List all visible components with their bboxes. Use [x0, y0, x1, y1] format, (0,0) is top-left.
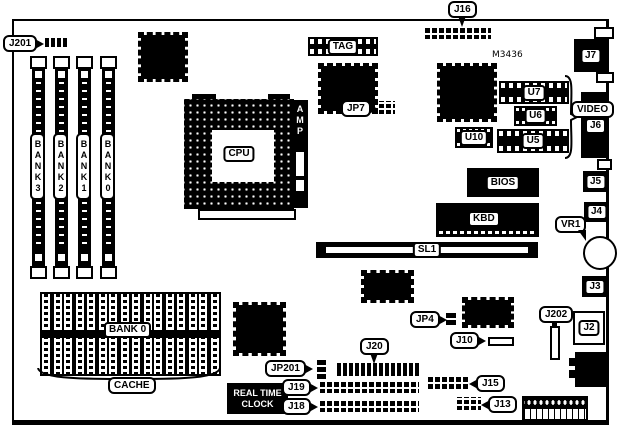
j16-header: [425, 28, 491, 39]
callout-j13: J13: [488, 396, 517, 413]
amp-pad: [296, 180, 304, 191]
simm-latch: [100, 266, 117, 279]
edge-lug: [594, 27, 614, 39]
j15-header: [428, 377, 468, 389]
simm-slot-bank0: BANK0: [102, 57, 115, 278]
bios-label: BIOS: [486, 175, 520, 191]
sl1-slot: SL1: [316, 242, 538, 258]
j201-connector: [45, 38, 67, 47]
simm-key: [57, 253, 66, 262]
simm-label-bank2: BANK2: [53, 133, 68, 200]
j202-connector: [550, 326, 560, 360]
edge-lug: [597, 159, 612, 170]
simm-label-bank0: BANK0: [100, 133, 115, 200]
connector-tab: [569, 358, 575, 366]
rtc-chip: REAL TIME CLOCK: [227, 383, 288, 414]
j20-header: [337, 363, 419, 376]
callout-jp7: JP7: [341, 100, 371, 117]
simm-latch: [30, 56, 47, 69]
callout-j15: J15: [476, 375, 505, 392]
j7-connector: J7: [574, 39, 607, 72]
simm-label-bank3: BANK3: [30, 133, 45, 200]
callout-j20: J20: [360, 338, 389, 355]
j10-connector: [488, 337, 514, 346]
qfp-chip-6: [462, 297, 514, 328]
simm-key: [104, 70, 113, 79]
u7-chip: U7: [499, 81, 569, 104]
vr1-speaker-circle: [583, 236, 617, 270]
j13-connector-strip: [522, 396, 588, 421]
j13-small-header: [457, 397, 481, 410]
rtc-label-line1: REAL TIME: [227, 388, 288, 399]
j3-connector: J3: [582, 276, 608, 297]
simm-key: [80, 70, 89, 79]
callout-jp4: JP4: [410, 311, 440, 328]
cache-socket: [62, 292, 86, 376]
j4-label: J4: [586, 204, 607, 220]
qfp-chip-5: [361, 270, 414, 303]
simm-latch: [100, 56, 117, 69]
amp-regulator-bar: AMP: [292, 100, 308, 208]
callout-j18: J18: [282, 398, 311, 415]
kbd-controller-chip: KBD: [436, 203, 539, 237]
tag-label: TAG: [328, 39, 358, 55]
tag-ram-chip: TAG: [308, 37, 378, 56]
j5-connector: J5: [583, 171, 608, 192]
u5-chip: U5: [497, 129, 569, 153]
amp-label: AMP: [295, 104, 305, 137]
qfp-chip-1: [138, 32, 188, 82]
u6-chip: U6: [514, 106, 557, 126]
simm-latch: [53, 56, 70, 69]
simm-key: [57, 70, 66, 79]
qfp-chip-3: [437, 63, 497, 122]
kbd-pin-row: [439, 231, 536, 234]
bios-chip: BIOS: [467, 168, 539, 197]
j19-header: [320, 382, 419, 393]
motherboard-diagram: J201 BANK3 BANK2 BANK1 BANK0: [0, 0, 619, 434]
simm-label-bank1: BANK1: [76, 133, 91, 200]
sl1-label: SL1: [413, 242, 441, 258]
cache-socket: [40, 292, 64, 376]
u7-label: U7: [523, 85, 546, 101]
jp4-jumper: [446, 312, 456, 327]
cache-socket: [152, 292, 176, 376]
cache-socket: [197, 292, 221, 376]
connector-tab: [569, 370, 575, 378]
jp7-jumper-block: [379, 101, 395, 114]
j2-area: J2: [573, 311, 605, 345]
amp-pad: [296, 152, 304, 176]
callout-vr1: VR1: [555, 216, 586, 233]
cpu-lever-bar: [198, 209, 296, 220]
cpu-socket: CPU: [184, 99, 294, 209]
callout-j19: J19: [282, 379, 311, 396]
u10-label: U10: [460, 130, 488, 146]
simm-latch: [30, 266, 47, 279]
cache-socket: [175, 292, 199, 376]
cpu-label: CPU: [223, 146, 254, 162]
j3-label: J3: [584, 279, 605, 295]
cache-label: CACHE: [108, 377, 156, 394]
callout-j202: J202: [539, 306, 573, 323]
edge-lug: [596, 72, 614, 83]
j6-label: J6: [585, 118, 606, 134]
callout-j16: J16: [448, 1, 477, 18]
u6-label: U6: [524, 108, 547, 124]
connector-block-bottom-right: [575, 352, 607, 387]
callout-jp201: JP201: [265, 360, 306, 377]
simm-key: [34, 70, 43, 79]
rtc-label-line2: CLOCK: [227, 399, 288, 410]
j13-pin-dots: [524, 398, 586, 407]
j4-connector: J4: [584, 202, 609, 222]
simm-slot-bank1: BANK1: [78, 57, 91, 278]
simm-latch: [76, 56, 93, 69]
simm-latch: [76, 266, 93, 279]
simm-key: [34, 253, 43, 262]
part-number-text: M3436: [492, 50, 523, 60]
simm-latch: [53, 266, 70, 279]
simm-slot-bank2: BANK2: [55, 57, 68, 278]
j5-label: J5: [585, 174, 606, 190]
j13-pin-squares: [524, 407, 586, 419]
qfp-chip-4: [233, 302, 286, 356]
callout-j10: J10: [450, 332, 479, 349]
simm-slot-bank3: BANK3: [32, 57, 45, 278]
u5-label: U5: [522, 133, 545, 149]
j2-label: J2: [578, 320, 599, 336]
cache-bank0-label: BANK 0: [104, 322, 151, 338]
simm-key: [80, 253, 89, 262]
video-label: VIDEO: [571, 101, 614, 118]
j7-label: J7: [580, 48, 601, 64]
u10-chip: U10: [455, 127, 493, 148]
simm-key: [104, 253, 113, 262]
j18-header: [320, 401, 419, 412]
jp201-jumper: [317, 360, 326, 381]
callout-j201: J201: [3, 35, 37, 52]
kbd-label: KBD: [468, 211, 500, 227]
